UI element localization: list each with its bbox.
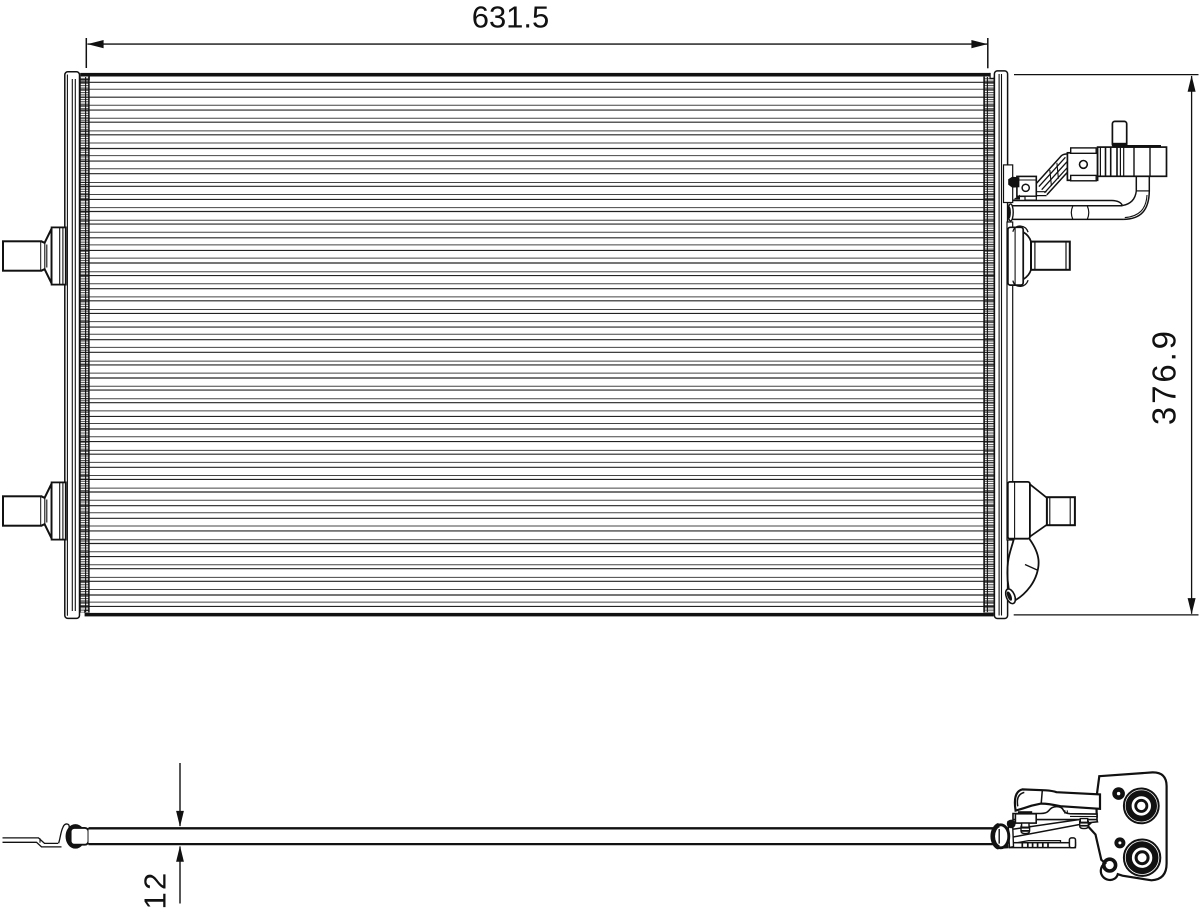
svg-text:631.5: 631.5 <box>472 0 550 35</box>
svg-text:376.9: 376.9 <box>1146 328 1183 425</box>
svg-text:12: 12 <box>138 871 173 910</box>
